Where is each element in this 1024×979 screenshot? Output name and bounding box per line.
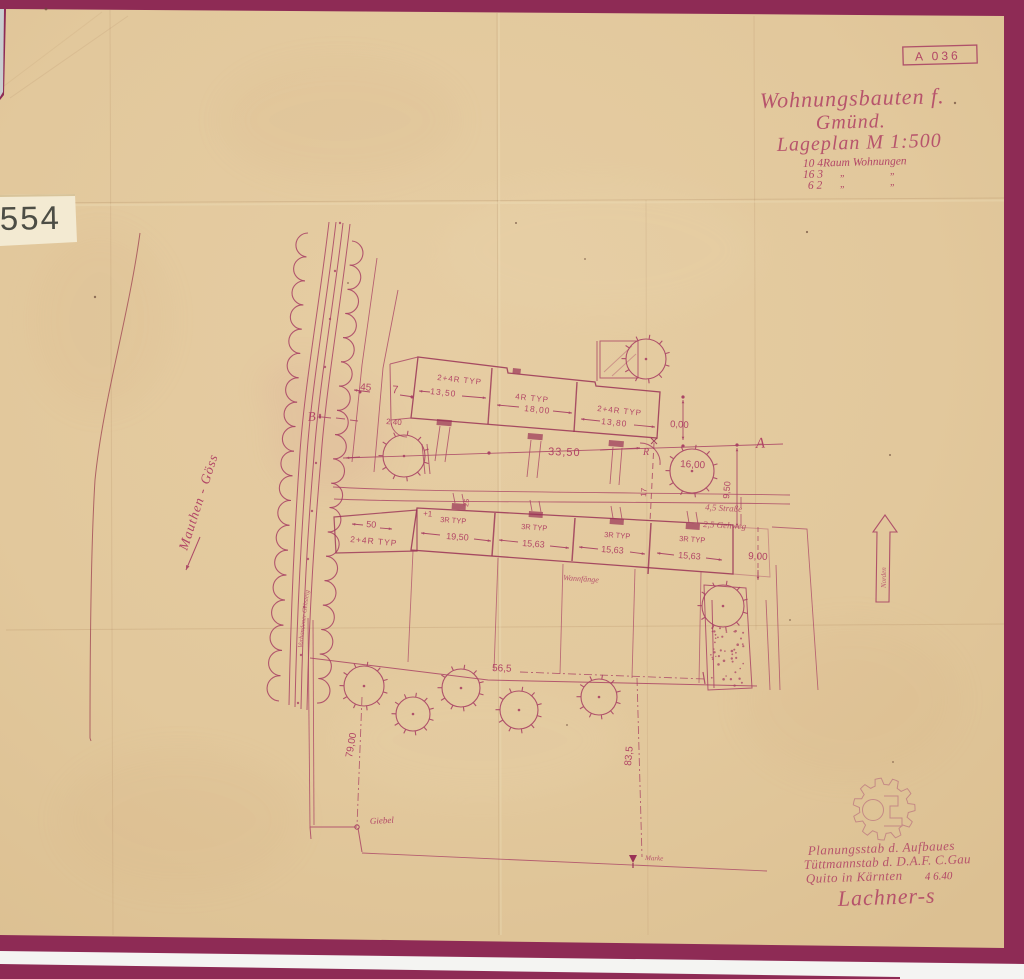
svg-text:15,63: 15,63 [522, 538, 545, 550]
svg-text:9,00: 9,00 [748, 551, 768, 563]
svg-text:B: B [307, 408, 316, 424]
svg-text:7: 7 [392, 384, 399, 396]
svg-text:Wohnungsbauten f.: Wohnungsbauten f. [759, 83, 944, 113]
svg-text:50: 50 [366, 519, 377, 530]
svg-text:„: „ [840, 179, 846, 190]
svg-text:Norden: Norden [880, 567, 888, 589]
svg-text:6 2: 6 2 [808, 180, 823, 192]
svg-text:R: R [642, 447, 649, 458]
svg-text:A: A [754, 435, 766, 452]
svg-text:+1: +1 [423, 509, 433, 519]
svg-text:56,5: 56,5 [492, 663, 512, 675]
svg-text:15,63: 15,63 [678, 550, 701, 562]
svg-text:554: 554 [0, 199, 61, 237]
svg-text:4,5 Straße: 4,5 Straße [705, 502, 742, 514]
svg-text:3R TYP: 3R TYP [440, 515, 467, 526]
svg-text:Marke: Marke [644, 854, 664, 863]
svg-text:Lachner-s: Lachner-s [836, 883, 936, 911]
svg-text:25: 25 [463, 498, 471, 507]
svg-text:83,5: 83,5 [623, 745, 636, 766]
svg-text:Lageplan M 1:500: Lageplan M 1:500 [776, 130, 942, 156]
svg-text:3R TYP: 3R TYP [604, 530, 631, 541]
svg-text:„: „ [890, 166, 896, 177]
svg-text:33,50: 33,50 [548, 446, 581, 459]
svg-text:A 036: A 036 [915, 48, 961, 63]
svg-text:45: 45 [360, 382, 372, 394]
svg-text:17: 17 [639, 487, 649, 497]
svg-text:9,50: 9,50 [721, 481, 732, 499]
svg-text:3R TYP: 3R TYP [521, 522, 548, 533]
svg-text:„: „ [890, 177, 896, 188]
svg-text:Gmünd.: Gmünd. [816, 110, 886, 134]
svg-text:4 6.40: 4 6.40 [925, 870, 953, 883]
svg-text:16,00: 16,00 [680, 459, 706, 471]
svg-text:2,40: 2,40 [386, 417, 403, 427]
svg-text:0,00: 0,00 [670, 419, 689, 431]
svg-text:19,50: 19,50 [446, 531, 469, 543]
svg-text:15,63: 15,63 [601, 544, 624, 556]
svg-text:Giebel: Giebel [370, 815, 395, 826]
svg-text:„: „ [840, 168, 846, 179]
svg-text:3R TYP: 3R TYP [679, 534, 706, 545]
